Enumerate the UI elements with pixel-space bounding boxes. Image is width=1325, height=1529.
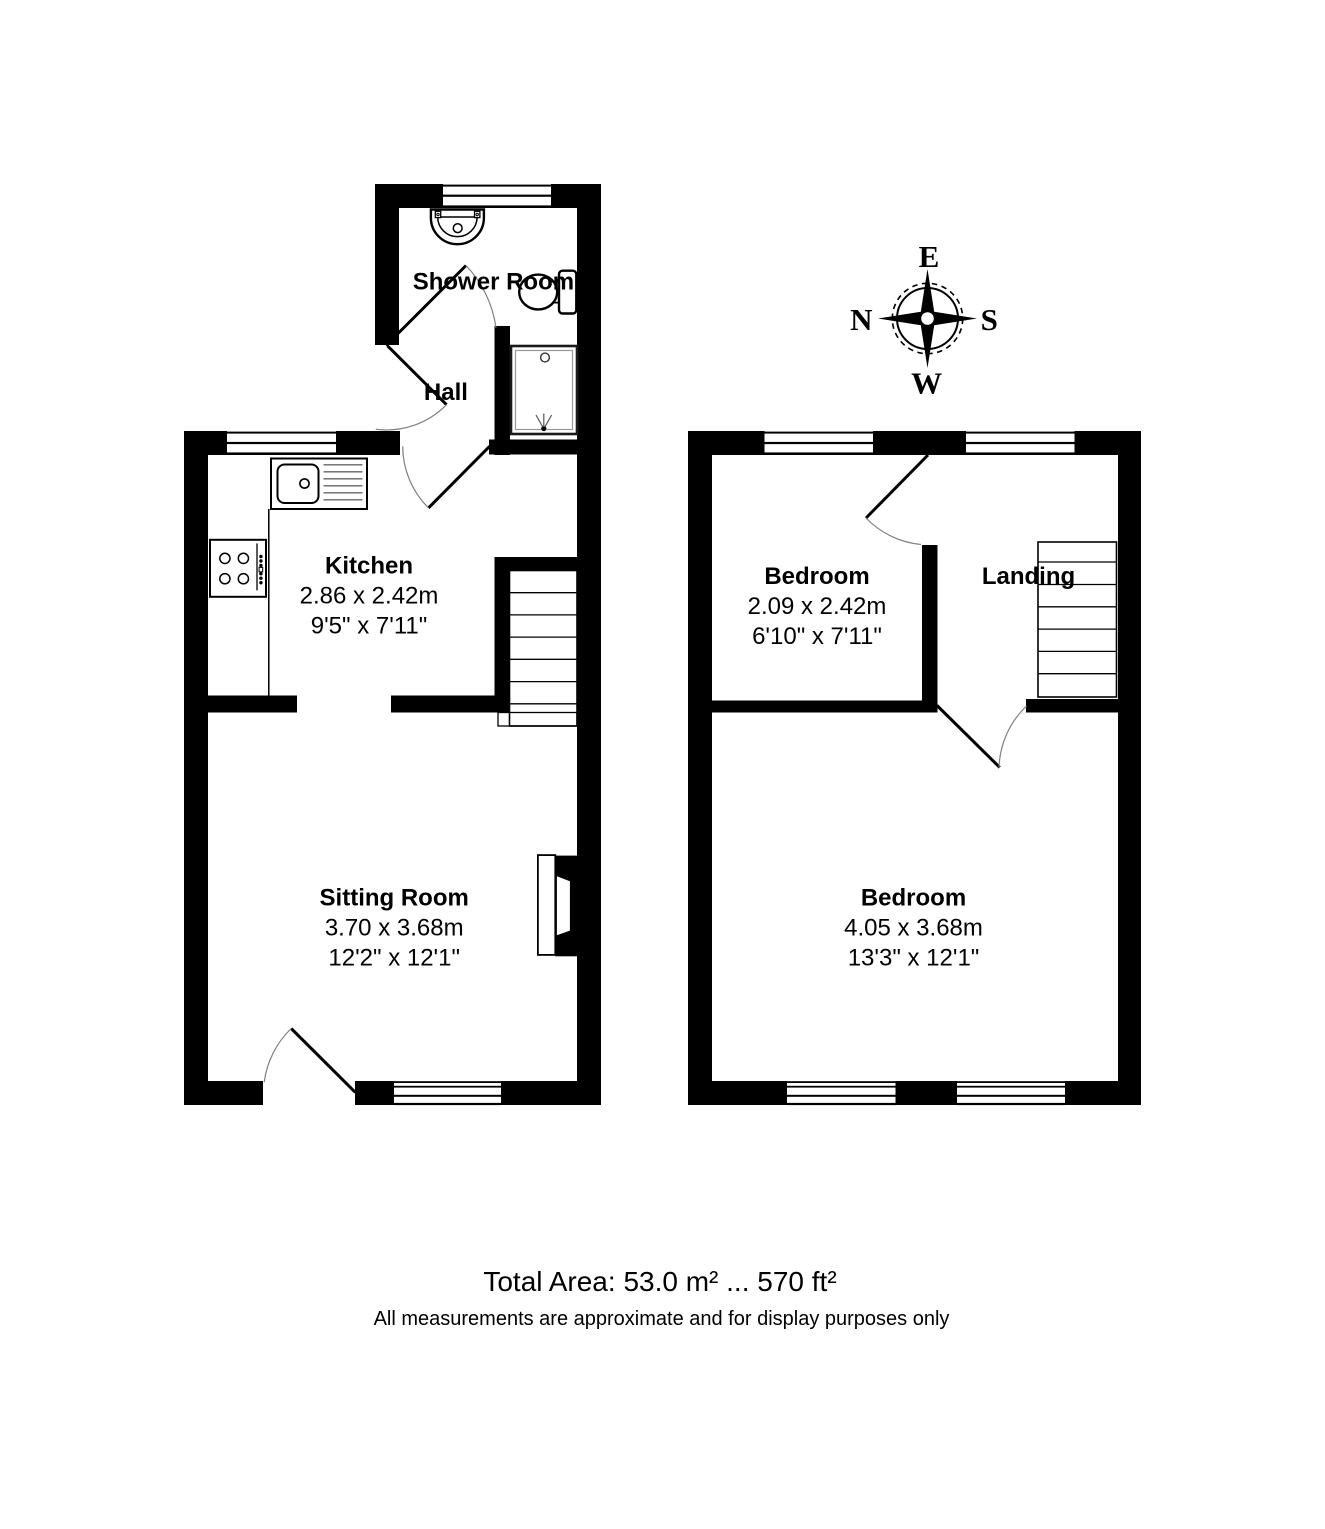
svg-text:6'10" x 7'11": 6'10" x 7'11" <box>752 623 882 650</box>
svg-text:Sitting Room: Sitting Room <box>320 885 469 912</box>
svg-text:All measurements are approxima: All measurements are approximate and for… <box>374 1308 950 1330</box>
svg-text:13'3" x 12'1": 13'3" x 12'1" <box>848 945 980 972</box>
svg-text:2.86 x 2.42m: 2.86 x 2.42m <box>300 583 439 610</box>
svg-text:Bedroom: Bedroom <box>861 885 966 912</box>
svg-text:E: E <box>919 239 940 274</box>
svg-text:N: N <box>850 302 872 337</box>
svg-text:Total Area: 53.0 m² ... 570 ft: Total Area: 53.0 m² ... 570 ft² <box>483 1266 836 1297</box>
svg-text:Shower Room: Shower Room <box>413 269 574 296</box>
svg-text:Hall: Hall <box>424 379 468 406</box>
svg-text:S: S <box>981 302 998 337</box>
svg-text:9'5" x 7'11": 9'5" x 7'11" <box>311 613 428 640</box>
svg-text:12'2" x 12'1": 12'2" x 12'1" <box>328 945 460 972</box>
svg-text:4.05 x 3.68m: 4.05 x 3.68m <box>844 915 983 942</box>
svg-text:3.70 x 3.68m: 3.70 x 3.68m <box>325 915 464 942</box>
svg-text:Kitchen: Kitchen <box>325 553 413 580</box>
svg-text:2.09 x 2.42m: 2.09 x 2.42m <box>748 593 887 620</box>
svg-text:Bedroom: Bedroom <box>764 563 869 590</box>
svg-text:W: W <box>911 366 942 401</box>
svg-text:Landing: Landing <box>982 563 1075 590</box>
